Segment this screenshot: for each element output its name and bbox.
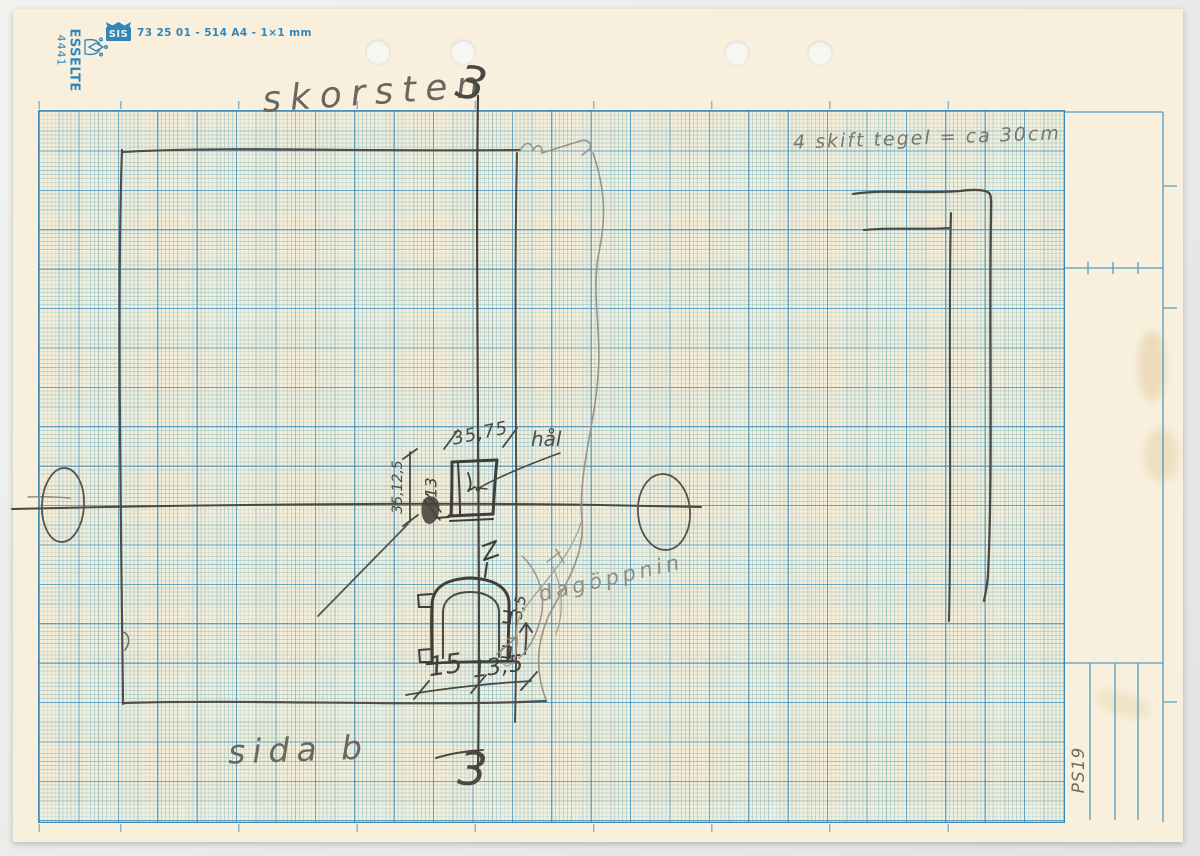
- plan-square-outline: [120, 149, 546, 722]
- wall-corner-sketch: [853, 190, 991, 621]
- center-lines: [12, 96, 701, 772]
- pencil-sketch-overlay: [0, 0, 1200, 856]
- scanned-graph-paper-page: 4441 ESSELTE SIS 73 25 01 - 514 A4 - 1×1…: [0, 0, 1200, 856]
- margin-printed-lines: [1065, 112, 1177, 822]
